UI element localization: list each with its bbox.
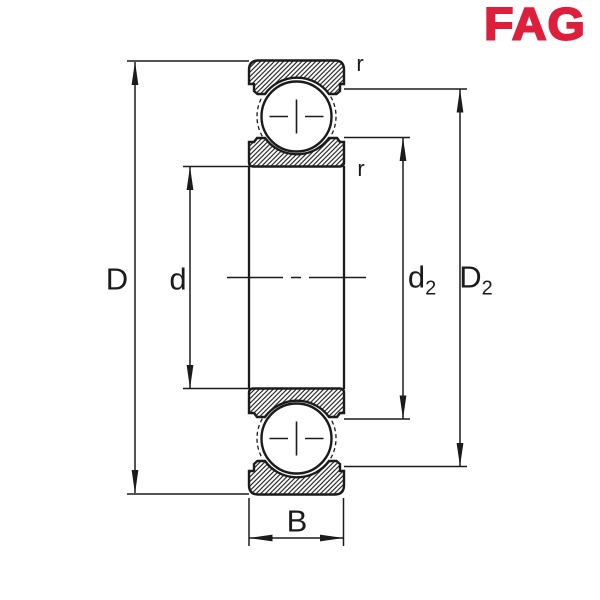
dim-label-inner-shoulder-d2: d2: [408, 262, 436, 299]
bearing-section-bottom: [249, 389, 344, 495]
bearing-dimension-drawing: D d d2 D2 B r r FAG: [0, 0, 600, 600]
dim-label-outer-diameter-D: D: [106, 264, 128, 295]
dim-label-outer-shoulder-D2: D2: [459, 262, 493, 299]
bearing-section-top: [249, 61, 344, 167]
corner-radius-label-bottom: r: [357, 158, 364, 180]
dim-label-D2-subscript: 2: [482, 278, 493, 300]
dim-label-bore-d: d: [169, 264, 186, 295]
dim-label-d2-base: d: [408, 260, 425, 295]
dim-label-D2-base: D: [459, 260, 481, 295]
dim-label-d2-subscript: 2: [425, 278, 436, 300]
corner-radius-label-top: r: [356, 53, 363, 75]
dim-label-width-B: B: [287, 506, 308, 537]
fag-logo: FAG: [483, 6, 587, 44]
